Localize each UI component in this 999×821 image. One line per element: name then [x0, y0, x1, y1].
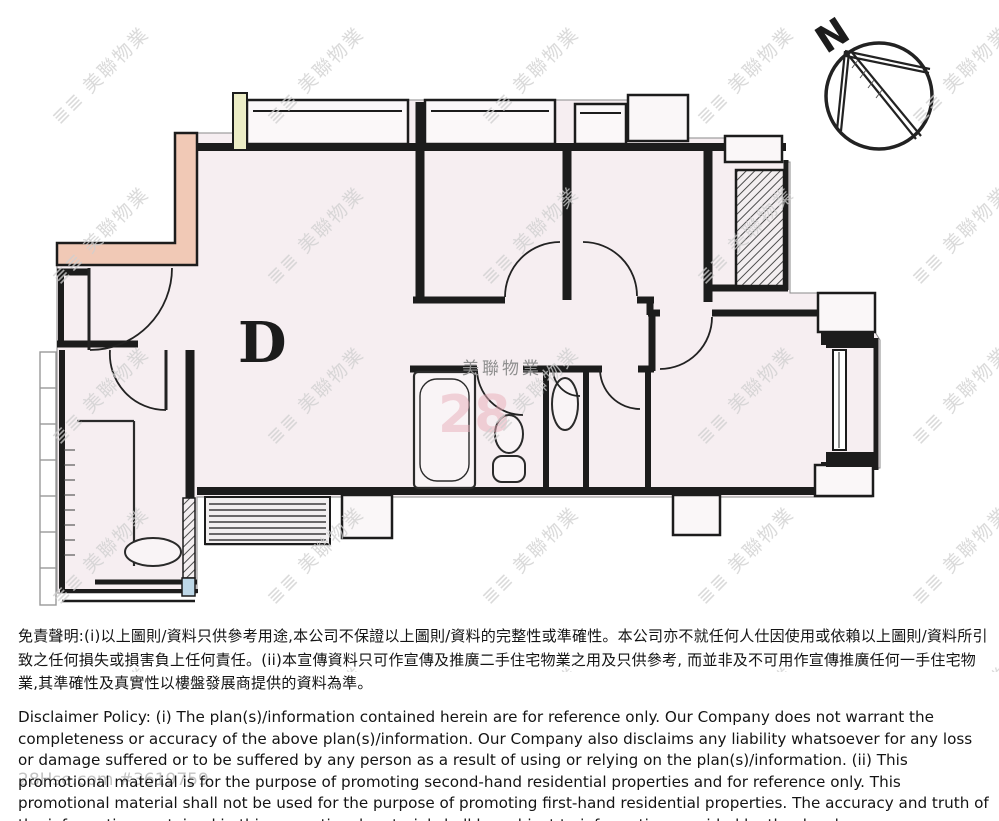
- disclaimer-english: Disclaimer Policy: (i) The plan(s)/infor…: [18, 707, 991, 821]
- floor-plan-page: ≣≣ 美聯物業: [0, 0, 999, 821]
- watermark-overlay: [0, 0, 999, 672]
- disclaimer-chinese: 免責聲明:(i)以上圖則/資料只供參考用途,本公司不保證以上圖則/資料的完整性或…: [18, 625, 991, 696]
- floor-plan-drawing: ≣≣ 美聯物業: [0, 0, 999, 700]
